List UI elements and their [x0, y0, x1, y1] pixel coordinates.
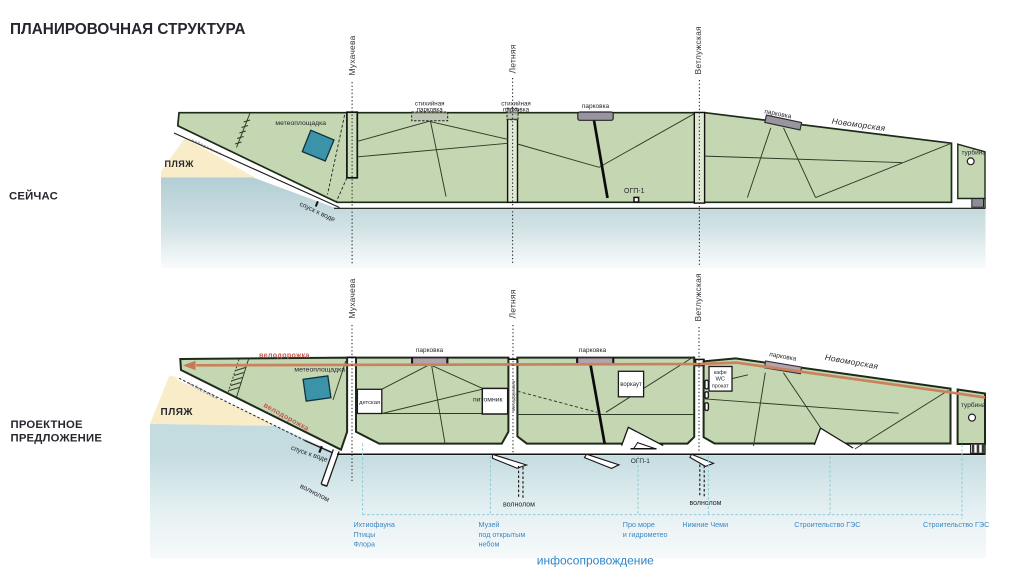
- svg-text:Новоморская: Новоморская: [824, 353, 879, 371]
- svg-text:ПЛАНИРОВОЧНАЯ СТРУКТУРА: ПЛАНИРОВОЧНАЯ СТРУКТУРА: [10, 21, 245, 38]
- svg-text:Музей: Музей: [479, 520, 500, 529]
- svg-text:Ихтиофауна: Ихтиофауна: [354, 520, 395, 529]
- svg-text:турбина: турбина: [962, 148, 987, 156]
- svg-text:Мухачева: Мухачева: [347, 35, 357, 75]
- svg-text:Мухачева: Мухачева: [347, 278, 357, 318]
- svg-text:Нижние Чеми: Нижние Чеми: [682, 520, 728, 529]
- svg-text:воркаут: воркаут: [620, 382, 642, 388]
- svg-text:Ветлужская: Ветлужская: [693, 26, 703, 74]
- svg-text:метеоплощадка: метеоплощадка: [275, 120, 326, 127]
- svg-text:кафе: кафе: [714, 370, 727, 376]
- svg-text:прокат: прокат: [712, 384, 729, 390]
- svg-text:ПЛЯЖ: ПЛЯЖ: [165, 159, 195, 169]
- svg-text:ОГП-1: ОГП-1: [624, 188, 645, 195]
- svg-text:детская: детская: [359, 400, 380, 406]
- svg-text:Летняя: Летняя: [508, 289, 518, 318]
- svg-text:WC: WC: [715, 376, 725, 382]
- svg-text:парковка: парковка: [503, 106, 530, 113]
- svg-text:парковка: парковка: [416, 347, 444, 354]
- svg-text:парковка: парковка: [417, 106, 444, 113]
- svg-text:питомник: питомник: [473, 397, 503, 404]
- svg-text:метеоплощадка: метеоплощадка: [294, 366, 345, 373]
- svg-text:велодорожка: велодорожка: [259, 350, 310, 359]
- svg-text:турбина: турбина: [961, 401, 986, 409]
- svg-text:Ветлужская: Ветлужская: [693, 273, 703, 321]
- svg-text:Летняя: Летняя: [507, 44, 517, 73]
- svg-text:ОГП-1: ОГП-1: [631, 458, 650, 465]
- svg-text:парковка: парковка: [769, 351, 798, 363]
- svg-text:парковка: парковка: [582, 103, 610, 110]
- svg-text:Про море: Про море: [623, 520, 655, 529]
- svg-text:ПРЕДЛОЖЕНИЕ: ПРЕДЛОЖЕНИЕ: [11, 432, 103, 444]
- svg-text:Строительство ГЭС: Строительство ГЭС: [794, 520, 860, 529]
- svg-text:парковка: парковка: [579, 347, 607, 354]
- svg-text:Птицы: Птицы: [354, 530, 376, 539]
- svg-text:небом: небом: [479, 539, 500, 548]
- svg-text:ПЛЯЖ: ПЛЯЖ: [161, 407, 194, 418]
- svg-text:под открытым: под открытым: [479, 530, 526, 539]
- svg-text:волнолом: волнолом: [503, 502, 535, 509]
- svg-text:СЕЙЧАС: СЕЙЧАС: [9, 190, 58, 203]
- svg-text:и гидрометео: и гидрометео: [623, 530, 668, 539]
- svg-text:велодорожка: велодорожка: [511, 381, 516, 411]
- svg-text:инфосопровождение: инфосопровождение: [537, 553, 654, 567]
- svg-text:ПРОЕКТНОЕ: ПРОЕКТНОЕ: [11, 419, 83, 431]
- svg-text:Флора: Флора: [354, 539, 376, 548]
- svg-text:волнолом: волнолом: [690, 500, 722, 507]
- svg-text:Строительство ГЭС: Строительство ГЭС: [923, 520, 989, 529]
